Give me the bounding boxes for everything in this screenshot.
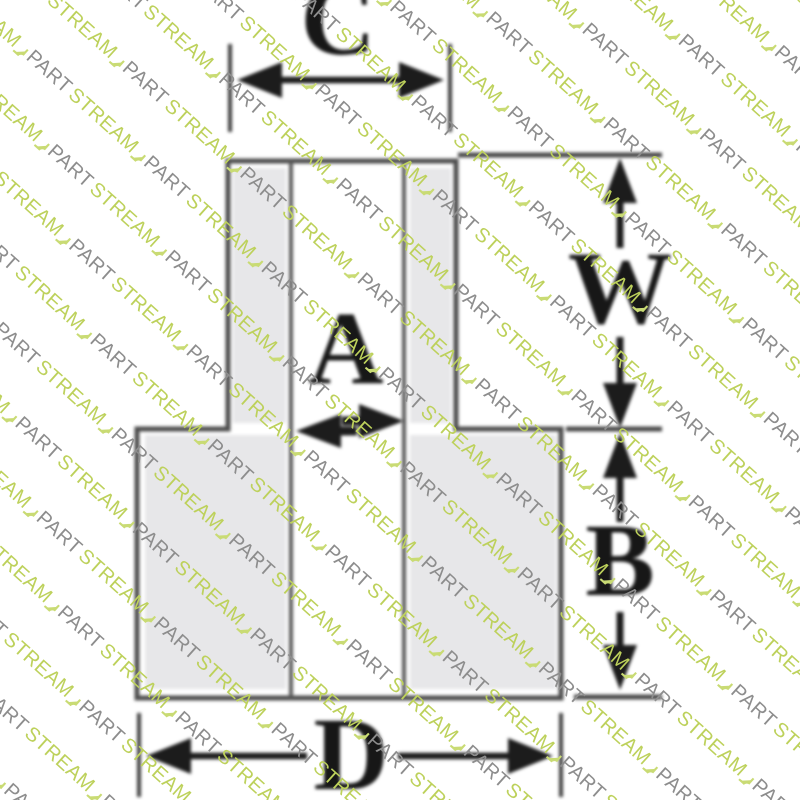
watermark-part-text: PART bbox=[183, 341, 236, 392]
watermark-item: PARTSTREAM bbox=[0, 652, 6, 787]
watermark-part-text: PART bbox=[717, 219, 770, 270]
watermark-stream-text: STREAM bbox=[86, 179, 164, 252]
watermark-part-text: PART bbox=[0, 224, 22, 275]
watermark-part-text: PART bbox=[706, 586, 759, 637]
watermark-item: PARTSTREAM bbox=[331, 248, 477, 383]
watermark-grid: PARTSTREAMPARTSTREAMPARTSTREAMPARTSTREAM… bbox=[0, 0, 800, 800]
watermark-part-text: PART bbox=[343, 636, 396, 687]
watermark-part-text: PART bbox=[54, 602, 107, 653]
watermark-part-text: PART bbox=[87, 330, 140, 381]
watermark-item: PARTSTREAM bbox=[608, 648, 754, 783]
watermark-stream-text: STREAM bbox=[288, 662, 366, 735]
watermark-part-text: PART bbox=[749, 775, 800, 800]
watermark-item: PARTSTREAM bbox=[310, 153, 456, 288]
watermark-stream-text: STREAM bbox=[792, 0, 800, 58]
watermark-item: PARTSTREAM bbox=[481, 81, 627, 216]
watermark-item: PARTSTREAM bbox=[75, 0, 221, 77]
watermark-part-text: PART bbox=[354, 269, 407, 320]
watermark-part-text: PART bbox=[236, 163, 289, 214]
gear-icon bbox=[142, 225, 176, 259]
watermark-item: PARTSTREAM bbox=[246, 0, 392, 5]
gear-icon bbox=[34, 580, 68, 614]
watermark-item: PARTSTREAM bbox=[459, 0, 605, 122]
gear-icon bbox=[665, 470, 699, 504]
watermark-item: PARTSTREAM bbox=[566, 459, 712, 594]
watermark-item: PARTSTREAM bbox=[631, 0, 777, 50]
watermark-item: PARTSTREAM bbox=[277, 425, 423, 560]
watermark-item: PARTSTREAM bbox=[469, 448, 615, 583]
watermark-stream-text: STREAM bbox=[204, 284, 282, 357]
watermark-stream-text: STREAM bbox=[117, 734, 195, 800]
gear-icon bbox=[783, 576, 800, 610]
watermark-item: PARTSTREAM bbox=[148, 686, 294, 800]
watermark-part-text: PART bbox=[172, 708, 225, 759]
watermark-item: PARTSTREAM bbox=[416, 625, 562, 760]
gear-icon bbox=[676, 104, 710, 138]
watermark-item: PARTSTREAM bbox=[662, 470, 800, 605]
watermark-part-text: PART bbox=[450, 280, 503, 331]
gear-icon bbox=[601, 187, 635, 221]
watermark-stream-text: STREAM bbox=[267, 568, 345, 641]
watermark-stream-text: STREAM bbox=[96, 640, 174, 713]
watermark-part-text: PART bbox=[685, 492, 738, 543]
watermark-item: PARTSTREAM bbox=[0, 0, 28, 54]
watermark-stream-text: STREAM bbox=[577, 696, 655, 769]
watermark-stream-text: STREAM bbox=[546, 140, 624, 213]
watermark-item: PARTSTREAM bbox=[341, 709, 487, 800]
watermark-item: PARTSTREAM bbox=[0, 297, 113, 432]
watermark-item: PARTSTREAM bbox=[437, 720, 583, 800]
gear-icon bbox=[440, 720, 474, 754]
watermark-stream-text: STREAM bbox=[631, 518, 709, 591]
watermark-stream-text: STREAM bbox=[706, 435, 784, 508]
gear-icon bbox=[515, 637, 549, 671]
watermark-item: PARTSTREAM bbox=[352, 342, 498, 477]
watermark-item: PARTSTREAM bbox=[10, 486, 156, 621]
watermark-part-text: PART bbox=[204, 435, 257, 486]
gear-icon bbox=[686, 565, 720, 599]
watermark-part-text: PART bbox=[610, 575, 663, 626]
watermark-part-text: PART bbox=[504, 102, 557, 153]
gear-icon bbox=[56, 675, 90, 709]
watermark-stream-text: STREAM bbox=[535, 507, 613, 580]
watermark-stream-text: STREAM bbox=[225, 379, 303, 452]
watermark-item: PARTSTREAM bbox=[523, 270, 669, 405]
watermark-stream-text: STREAM bbox=[727, 529, 800, 602]
watermark-item: PARTSTREAM bbox=[0, 286, 17, 421]
watermark-part-text: PART bbox=[727, 681, 780, 732]
watermark-part-text: PART bbox=[631, 669, 684, 720]
watermark-stream-text: STREAM bbox=[513, 412, 591, 485]
watermark-stream-text: STREAM bbox=[342, 484, 420, 557]
watermark-item: PARTSTREAM bbox=[192, 47, 338, 182]
watermark-item: PARTSTREAM bbox=[704, 659, 800, 794]
gear-icon bbox=[0, 758, 15, 792]
watermark-part-text: PART bbox=[429, 186, 482, 237]
watermark-part-text: PART bbox=[781, 503, 800, 554]
watermark-stream-text: STREAM bbox=[471, 224, 549, 297]
watermark-part-text: PART bbox=[0, 685, 32, 736]
watermark-stream-text: STREAM bbox=[450, 129, 528, 202]
gear-icon bbox=[548, 365, 582, 399]
watermark-part-text: PART bbox=[579, 19, 632, 70]
watermark-stream-text: STREAM bbox=[492, 318, 570, 391]
watermark-item: PARTSTREAM bbox=[138, 225, 284, 360]
watermark-stream-text: STREAM bbox=[503, 0, 581, 24]
watermark-item: PARTSTREAM bbox=[790, 209, 800, 344]
watermark-item: PARTSTREAM bbox=[385, 70, 531, 205]
gear-icon bbox=[323, 614, 357, 648]
gear-icon bbox=[773, 115, 800, 149]
watermark-item: PARTSTREAM bbox=[427, 259, 573, 394]
gear-icon bbox=[559, 0, 593, 32]
watermark-item: PARTSTREAM bbox=[266, 792, 412, 800]
watermark-item: PARTSTREAM bbox=[170, 781, 316, 800]
watermark-stream-text: STREAM bbox=[75, 545, 153, 618]
watermark-stream-text: STREAM bbox=[652, 613, 730, 686]
watermark-item: PARTSTREAM bbox=[74, 769, 220, 800]
watermark-item: PARTSTREAM bbox=[0, 14, 49, 149]
watermark-item: PARTSTREAM bbox=[0, 569, 81, 704]
watermark-part-text: PART bbox=[279, 352, 332, 403]
watermark-item: PARTSTREAM bbox=[438, 0, 584, 27]
watermark-item: PARTSTREAM bbox=[31, 580, 177, 715]
gear-icon bbox=[184, 414, 218, 448]
watermark-part-text: PART bbox=[375, 363, 428, 414]
watermark-part-text: PART bbox=[460, 741, 513, 792]
watermark-part-text: PART bbox=[771, 42, 800, 93]
watermark-item: PARTSTREAM bbox=[0, 108, 70, 243]
gear-icon bbox=[484, 81, 518, 115]
watermark-item: PARTSTREAM bbox=[267, 0, 413, 99]
watermark-part-text: PART bbox=[642, 303, 695, 354]
watermark-item: PARTSTREAM bbox=[737, 387, 800, 522]
gear-icon bbox=[505, 176, 539, 210]
watermark-part-text: PART bbox=[0, 318, 44, 369]
watermark-item: PARTSTREAM bbox=[652, 9, 798, 144]
watermark-item: PARTSTREAM bbox=[683, 565, 800, 700]
gear-icon bbox=[623, 281, 657, 315]
gear-icon bbox=[46, 214, 80, 248]
watermark-part-text: PART bbox=[0, 129, 1, 180]
watermark-stream-text: STREAM bbox=[599, 0, 677, 35]
watermark-item: PARTSTREAM bbox=[363, 0, 509, 111]
gear-icon bbox=[13, 486, 47, 520]
watermark-part-text: PART bbox=[739, 314, 792, 365]
watermark-part-text: PART bbox=[246, 624, 299, 675]
watermark-part-text: PART bbox=[119, 58, 172, 109]
watermark-part-text: PART bbox=[44, 141, 97, 192]
watermark-item: PARTSTREAM bbox=[288, 59, 434, 194]
watermark-stream-text: STREAM bbox=[598, 790, 676, 800]
watermark-part-text: PART bbox=[333, 174, 386, 225]
watermark-stream-text: STREAM bbox=[363, 579, 441, 652]
gear-icon bbox=[344, 709, 378, 743]
watermark-stream-text: STREAM bbox=[748, 624, 800, 697]
watermark-item: PARTSTREAM bbox=[727, 0, 800, 61]
watermark-part-text: PART bbox=[439, 647, 492, 698]
watermark-item: PARTSTREAM bbox=[0, 747, 27, 800]
gear-icon bbox=[419, 625, 453, 659]
watermark-stream-text: STREAM bbox=[257, 107, 335, 180]
watermark-part-text: PART bbox=[471, 375, 524, 426]
gear-icon bbox=[729, 754, 763, 788]
watermark-item: PARTSTREAM bbox=[779, 576, 800, 711]
watermark-stream-text: STREAM bbox=[417, 401, 495, 474]
gear-icon bbox=[0, 297, 5, 331]
watermark-part-text: PART bbox=[546, 291, 599, 342]
gear-icon bbox=[377, 436, 411, 470]
watermark-item: PARTSTREAM bbox=[213, 142, 359, 277]
gear-icon bbox=[367, 0, 401, 9]
watermark-item: PARTSTREAM bbox=[256, 331, 402, 466]
watermark-stream-text: STREAM bbox=[769, 718, 800, 791]
watermark-stream-text: STREAM bbox=[32, 356, 110, 429]
watermark-part-text: PART bbox=[194, 0, 247, 25]
watermark-stream-text: STREAM bbox=[385, 673, 463, 746]
gear-icon bbox=[590, 553, 624, 587]
gear-icon bbox=[334, 248, 368, 282]
watermark-part-text: PART bbox=[162, 246, 215, 297]
watermark-item: PARTSTREAM bbox=[235, 236, 381, 371]
gear-icon bbox=[269, 792, 303, 800]
gear-icon bbox=[355, 342, 389, 376]
watermark-part-text: PART bbox=[760, 408, 800, 459]
gear-icon bbox=[761, 481, 795, 515]
watermark-item: PARTSTREAM bbox=[641, 376, 787, 511]
watermark-item: PARTSTREAM bbox=[85, 403, 231, 538]
gear-icon bbox=[302, 520, 336, 554]
watermark-item: PARTSTREAM bbox=[502, 176, 648, 311]
watermark-stream-text: STREAM bbox=[321, 390, 399, 463]
watermark-stream-text: STREAM bbox=[182, 190, 260, 263]
gear-icon bbox=[494, 542, 528, 576]
watermark-stream-text: STREAM bbox=[438, 496, 516, 569]
watermark-stream-text: STREAM bbox=[525, 46, 603, 119]
gear-icon bbox=[740, 387, 774, 421]
watermark-stream-text: STREAM bbox=[192, 651, 270, 724]
watermark-stream-text: STREAM bbox=[375, 212, 453, 285]
watermark-part-text: PART bbox=[600, 114, 653, 165]
watermark-stream-text: STREAM bbox=[140, 1, 218, 74]
watermark-item: PARTSTREAM bbox=[0, 380, 38, 515]
watermark-stream-text: STREAM bbox=[0, 439, 35, 512]
watermark-item: PARTSTREAM bbox=[127, 592, 273, 727]
gear-icon bbox=[99, 36, 133, 70]
gear-icon bbox=[0, 392, 26, 426]
watermark-stream-text: STREAM bbox=[0, 167, 67, 240]
gear-icon bbox=[163, 320, 197, 354]
watermark-part-text: PART bbox=[652, 764, 705, 800]
gear-icon bbox=[67, 308, 101, 342]
watermark-item: PARTSTREAM bbox=[726, 754, 800, 800]
watermark-part-text: PART bbox=[675, 30, 728, 81]
watermark-item: PARTSTREAM bbox=[42, 214, 188, 349]
watermark-item: PARTSTREAM bbox=[544, 365, 690, 500]
watermark-stream-text: STREAM bbox=[310, 757, 388, 800]
watermark-stream-text: STREAM bbox=[44, 0, 122, 62]
watermark-stream-text: STREAM bbox=[311, 0, 389, 1]
watermark-part-text: PART bbox=[792, 136, 800, 187]
gear-icon bbox=[527, 270, 561, 304]
watermark-item: PARTSTREAM bbox=[117, 131, 263, 266]
watermark-stream-text: STREAM bbox=[11, 262, 89, 335]
gear-icon bbox=[580, 92, 614, 126]
gear-icon bbox=[655, 9, 689, 43]
watermark-item: PARTSTREAM bbox=[491, 542, 637, 677]
watermark-layer: PARTSTREAMPARTSTREAMPARTSTREAMPARTSTREAM… bbox=[0, 0, 800, 800]
watermark-stream-text: STREAM bbox=[502, 779, 580, 800]
watermark-part-text: PART bbox=[696, 125, 749, 176]
watermark-part-text: PART bbox=[108, 424, 161, 475]
watermark-item: PARTSTREAM bbox=[96, 36, 242, 171]
watermark-stream-text: STREAM bbox=[460, 590, 538, 663]
watermark-part-text: PART bbox=[150, 613, 203, 664]
watermark-part-text: PART bbox=[98, 0, 151, 14]
watermark-stream-text: STREAM bbox=[673, 707, 751, 780]
gear-icon bbox=[452, 353, 486, 387]
watermark-part-text: PART bbox=[664, 397, 717, 448]
watermark-part-text: PART bbox=[364, 730, 417, 781]
watermark-item: PARTSTREAM bbox=[21, 119, 167, 254]
watermark-stream-text: STREAM bbox=[236, 12, 314, 85]
gear-icon bbox=[24, 119, 58, 153]
watermark-item: PARTSTREAM bbox=[748, 20, 800, 155]
watermark-stream-text: STREAM bbox=[738, 163, 800, 236]
watermark-item: PARTSTREAM bbox=[448, 353, 594, 488]
watermark-item: PARTSTREAM bbox=[245, 697, 391, 800]
gear-icon bbox=[644, 376, 678, 410]
watermark-part-text: PART bbox=[621, 208, 674, 259]
watermark-stream-text: STREAM bbox=[171, 556, 249, 629]
watermark-item: PARTSTREAM bbox=[534, 0, 680, 39]
watermark-stream-text: STREAM bbox=[0, 345, 14, 418]
watermark-part-text: PART bbox=[0, 780, 53, 800]
watermark-item: PARTSTREAM bbox=[395, 531, 541, 666]
watermark-item: PARTSTREAM bbox=[533, 731, 679, 800]
gear-icon bbox=[409, 164, 443, 198]
watermark-item: PARTSTREAM bbox=[0, 758, 123, 800]
watermark-part-text: PART bbox=[75, 696, 128, 747]
watermark-stream-text: STREAM bbox=[428, 35, 506, 108]
watermark-item: PARTSTREAM bbox=[0, 25, 145, 160]
watermark-part-text: PART bbox=[408, 91, 461, 142]
watermark-stream-text: STREAM bbox=[0, 712, 3, 785]
watermark-part-text: PART bbox=[568, 386, 621, 437]
watermark-part-text: PART bbox=[386, 0, 439, 47]
watermark-item: PARTSTREAM bbox=[202, 508, 348, 643]
watermark-item: PARTSTREAM bbox=[298, 520, 444, 655]
watermark-stream-text: STREAM bbox=[21, 723, 99, 796]
watermark-stream-text: STREAM bbox=[150, 462, 228, 535]
watermark-stream-text: STREAM bbox=[621, 57, 699, 130]
watermark-item: PARTSTREAM bbox=[716, 293, 800, 428]
watermark-stream-text: STREAM bbox=[696, 0, 774, 46]
gear-icon bbox=[248, 697, 282, 731]
gear-icon bbox=[708, 659, 742, 693]
gear-icon bbox=[698, 198, 732, 232]
watermark-stream-text: STREAM bbox=[0, 0, 25, 51]
gear-icon bbox=[398, 531, 432, 565]
gear-icon bbox=[537, 731, 571, 765]
watermark-part-text: PART bbox=[525, 197, 578, 248]
watermark-item: PARTSTREAM bbox=[320, 614, 466, 749]
watermark-part-text: PART bbox=[493, 469, 546, 520]
watermark-item: PARTSTREAM bbox=[0, 475, 59, 610]
watermark-item: PARTSTREAM bbox=[587, 553, 733, 688]
watermark-stream-text: STREAM bbox=[129, 367, 207, 440]
watermark-part-text: PART bbox=[483, 8, 536, 59]
gear-icon bbox=[751, 20, 785, 54]
watermark-stream-text: STREAM bbox=[54, 451, 132, 524]
watermark-item: PARTSTREAM bbox=[673, 104, 800, 239]
watermark-stream-text: STREAM bbox=[107, 273, 185, 346]
gear-icon bbox=[280, 425, 314, 459]
watermark-stream-text: STREAM bbox=[609, 424, 687, 497]
watermark-item: PARTSTREAM bbox=[406, 164, 552, 299]
watermark-stream-text: STREAM bbox=[642, 152, 720, 225]
gear-icon bbox=[611, 648, 645, 682]
watermark-stream-text: STREAM bbox=[214, 745, 292, 800]
watermark-item: PARTSTREAM bbox=[758, 481, 800, 616]
watermark-stream-text: STREAM bbox=[781, 352, 800, 425]
watermark-item: PARTSTREAM bbox=[769, 115, 800, 250]
watermark-part-text: PART bbox=[556, 753, 609, 800]
watermark-stream-text: STREAM bbox=[300, 296, 378, 369]
gear-icon bbox=[259, 331, 293, 365]
watermark-item: PARTSTREAM bbox=[512, 637, 658, 772]
watermark-stream-text: STREAM bbox=[481, 685, 559, 758]
watermark-item: PARTSTREAM bbox=[342, 0, 488, 16]
watermark-stream-text: STREAM bbox=[396, 307, 474, 380]
watermark-part-text: PART bbox=[589, 480, 642, 531]
gear-icon bbox=[430, 259, 464, 293]
gear-icon bbox=[633, 742, 667, 776]
watermark-item: PARTSTREAM bbox=[52, 675, 198, 800]
watermark-part-text: PART bbox=[33, 507, 86, 558]
watermark-part-text: PART bbox=[514, 564, 567, 615]
gear-icon bbox=[88, 403, 122, 437]
watermark-item: PARTSTREAM bbox=[181, 414, 327, 549]
gear-icon bbox=[569, 459, 603, 493]
watermark-part-text: PART bbox=[418, 552, 471, 603]
watermark-stream-text: STREAM bbox=[684, 340, 762, 413]
gear-icon bbox=[217, 142, 251, 176]
watermark-item: PARTSTREAM bbox=[619, 281, 765, 416]
watermark-item: PARTSTREAM bbox=[373, 436, 519, 571]
watermark-stream-text: STREAM bbox=[663, 246, 741, 319]
part-dimension-diagram: C A W B D PARTSTREAMPARTSTREAMPARTSTREAM… bbox=[0, 0, 800, 800]
gear-icon bbox=[196, 47, 230, 81]
watermark-part-text: PART bbox=[65, 235, 118, 286]
gear-icon bbox=[794, 209, 800, 243]
watermark-part-text: PART bbox=[12, 413, 65, 464]
watermark-stream-text: STREAM bbox=[0, 73, 46, 146]
watermark-stream-text: STREAM bbox=[246, 473, 324, 546]
watermark-part-text: PART bbox=[311, 80, 364, 131]
watermark-stream-text: STREAM bbox=[353, 118, 431, 191]
watermark-stream-text: STREAM bbox=[161, 95, 239, 168]
gear-icon bbox=[473, 448, 507, 482]
watermark-item: PARTSTREAM bbox=[577, 92, 723, 227]
watermark-part-text: PART bbox=[215, 69, 268, 120]
watermark-stream-text: STREAM bbox=[556, 601, 634, 674]
watermark-stream-text: STREAM bbox=[332, 23, 410, 96]
gear-icon bbox=[131, 592, 165, 626]
watermark-item: PARTSTREAM bbox=[598, 187, 744, 322]
watermark-part-text: PART bbox=[225, 530, 278, 581]
watermark-part-text: PART bbox=[535, 658, 588, 709]
